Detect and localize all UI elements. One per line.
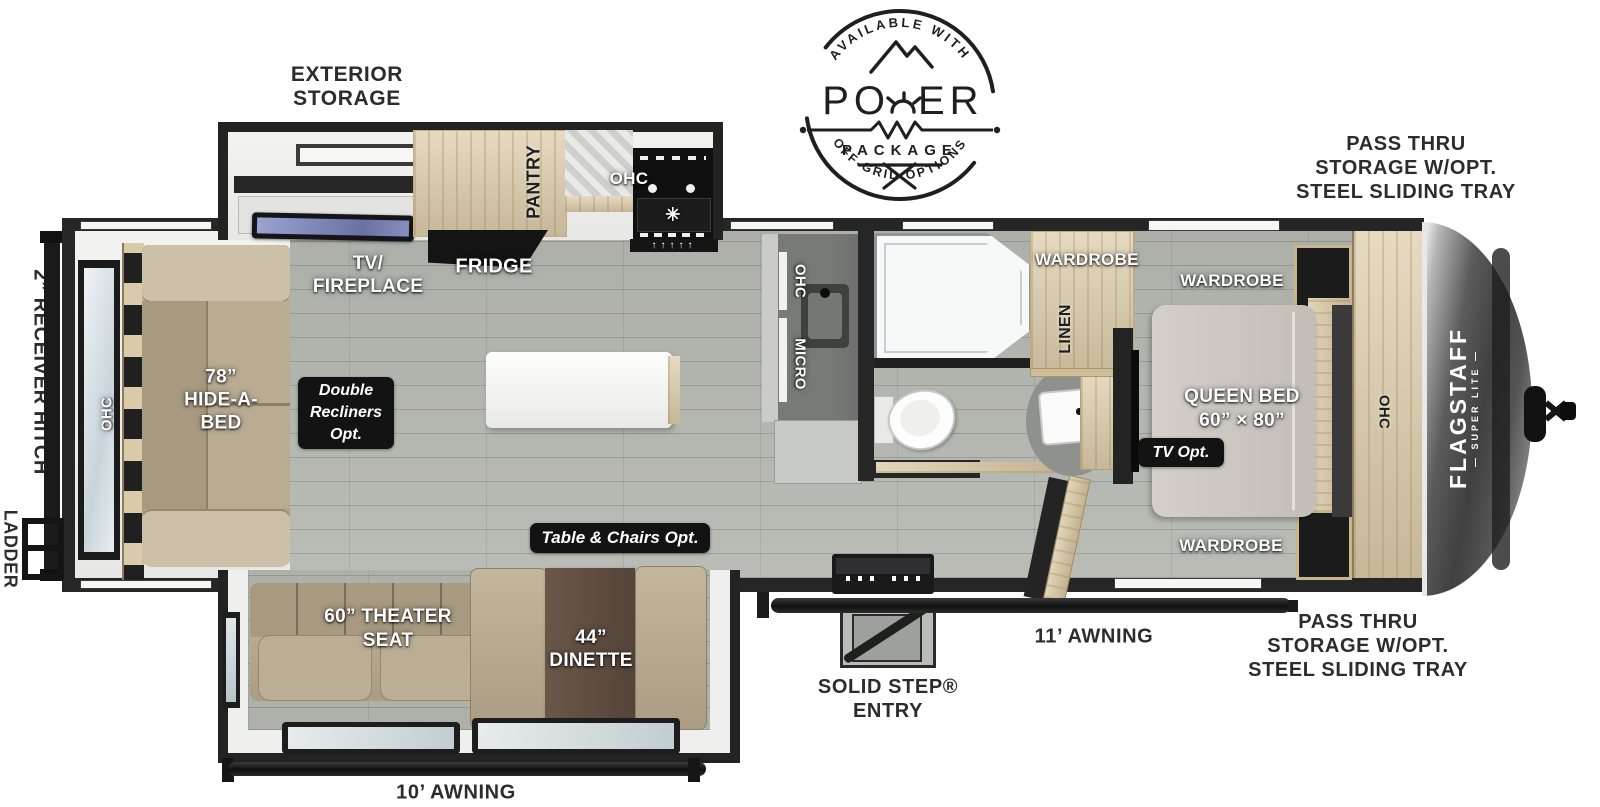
- awning-11-bar: [771, 598, 1291, 613]
- rear-bumper-cap-top: [40, 231, 62, 243]
- window-rear-bottom: [80, 580, 212, 589]
- tv-screen-glass: [257, 217, 409, 236]
- hitch-tongue: [1524, 386, 1546, 442]
- range-burner-icon: ✳: [665, 205, 680, 226]
- logo-word-po: PO: [822, 79, 890, 123]
- bedroom-wardrobe-bottom-cabinet: [1296, 510, 1352, 580]
- ladder-label: LADDER: [0, 510, 21, 589]
- logo-arc-top-text: AVAILABLE WITH: [826, 15, 974, 63]
- brand-sub: — SUPER LITE —: [1470, 258, 1480, 558]
- griddle-knobs-right: [892, 576, 924, 581]
- entertainment-shelf: [234, 176, 416, 193]
- griddle-top: [836, 558, 930, 574]
- counter-door-strip-2: [779, 318, 787, 402]
- kitchen-faucet: [820, 288, 830, 298]
- tv-opt-badge: TV Opt.: [1138, 438, 1224, 467]
- shower-threshold: [874, 358, 1034, 368]
- pantry-label: PANTRY: [524, 145, 545, 219]
- kitchen-base-cabinet: [774, 420, 862, 484]
- window-bath-top: [902, 221, 994, 230]
- window-rear-top: [80, 221, 212, 230]
- range-dash-row: [640, 233, 706, 237]
- slide-window-bottom-left-glass: [288, 727, 454, 749]
- bath-wall-left: [858, 231, 874, 481]
- dinette-bench-right: [635, 566, 707, 730]
- window-bedroom-bottom: [1114, 578, 1262, 589]
- slide-window-left-glass: [226, 618, 236, 702]
- hitch-jack-head: [1560, 402, 1576, 420]
- range-vent-dashes: [640, 156, 706, 160]
- ladder-rung: [22, 545, 64, 551]
- solid-step-entry-label: SOLID STEP®ENTRY: [818, 675, 958, 723]
- slide-window-bottom-right-glass: [478, 723, 674, 749]
- dinette-label: 44”DINETTE: [549, 626, 632, 672]
- awning-11-pin: [1288, 600, 1298, 612]
- bedroom-shadow-band: [1332, 305, 1354, 517]
- brand-name: FLAGSTAFF: [1446, 258, 1470, 558]
- floorplan-diagram: AVAILABLE WITH OFF-GRID OPTIONS PO ER PA…: [0, 0, 1600, 807]
- wardrobe-hall-label: WARDROBE: [1035, 250, 1138, 270]
- window-bedroom-top: [1148, 220, 1280, 231]
- shower-inner-line: [884, 243, 1022, 353]
- hide-a-bed-frame: [122, 243, 144, 580]
- bedroom-tv-cabinet: [1113, 328, 1133, 484]
- ohc-rear-label: OHC: [99, 397, 116, 431]
- griddle-knobs-left: [846, 576, 878, 581]
- dinette-bench-left: [470, 568, 548, 730]
- range-knob-right: [686, 184, 695, 193]
- double-recliners-badge: DoubleReclinersOpt.: [298, 377, 394, 449]
- theater-seat-label: 60” THEATERSEAT: [324, 605, 452, 653]
- awning-11-bracket: [757, 592, 769, 618]
- sun-icon: [888, 93, 920, 112]
- kitchen-island: [486, 352, 672, 428]
- awning-10-label: 10’ AWNING: [396, 782, 516, 805]
- top-slide-window: [296, 144, 428, 166]
- hide-a-bed-label: 78”HIDE-A-BED: [184, 366, 258, 435]
- island-wood-edge: [668, 356, 680, 424]
- wardrobe-top-label: WARDROBE: [1180, 271, 1283, 291]
- exterior-storage-label: EXTERIORSTORAGE: [291, 63, 403, 111]
- kitchen-counter-strip: [565, 196, 635, 212]
- sofa-armrest-bottom: [142, 509, 290, 567]
- logo-package-text: PACKAGE: [842, 142, 958, 159]
- awning-11-label: 11’ AWNING: [1035, 626, 1154, 649]
- ohc-range-label: OHC: [610, 169, 649, 189]
- awning-10-bar: [228, 762, 706, 776]
- svg-text:AVAILABLE WITH: AVAILABLE WITH: [826, 15, 974, 63]
- queen-bed-label: QUEEN BED60” × 80”: [1184, 385, 1300, 433]
- pass-thru-storage-top-label: PASS THRUSTORAGE W/OPT.STEEL SLIDING TRA…: [1296, 132, 1516, 204]
- sofa-armrest-top: [142, 245, 290, 303]
- range-trim-arrows: ↑↑↑↑↑: [630, 239, 718, 252]
- tv-fireplace-label: TV/FIREPLACE: [313, 252, 423, 298]
- linen-label: LINEN: [1057, 304, 1075, 354]
- front-cap-decal: [1492, 248, 1510, 570]
- power-package-logo: AVAILABLE WITH OFF-GRID OPTIONS PO ER PA…: [795, 2, 1005, 210]
- table-chairs-badge: Table & Chairs Opt.: [530, 523, 710, 553]
- bath-ledge: [876, 462, 1066, 473]
- kitchen-sink-basin: [808, 293, 842, 339]
- zigzag-line: [807, 122, 993, 138]
- awning-10-pin-right: [688, 758, 700, 782]
- ohc-counter-label: OHC: [792, 264, 809, 298]
- fridge-label: FRIDGE: [455, 256, 532, 279]
- wardrobe-bottom-label: WARDROBE: [1179, 536, 1282, 556]
- range-knob-left: [648, 184, 657, 193]
- pass-thru-storage-bottom-label: PASS THRUSTORAGE W/OPT.STEEL SLIDING TRA…: [1248, 610, 1468, 682]
- ohc-front-label: OHC: [1376, 395, 1393, 429]
- window-kitchen-top: [730, 221, 834, 230]
- mountains-icon: [871, 42, 932, 72]
- brand-mark: FLAGSTAFF — SUPER LITE —: [1446, 258, 1486, 558]
- logo-word-er: ER: [918, 79, 984, 123]
- micro-label: MICRO: [792, 338, 809, 390]
- counter-door-strip-1: [779, 252, 787, 310]
